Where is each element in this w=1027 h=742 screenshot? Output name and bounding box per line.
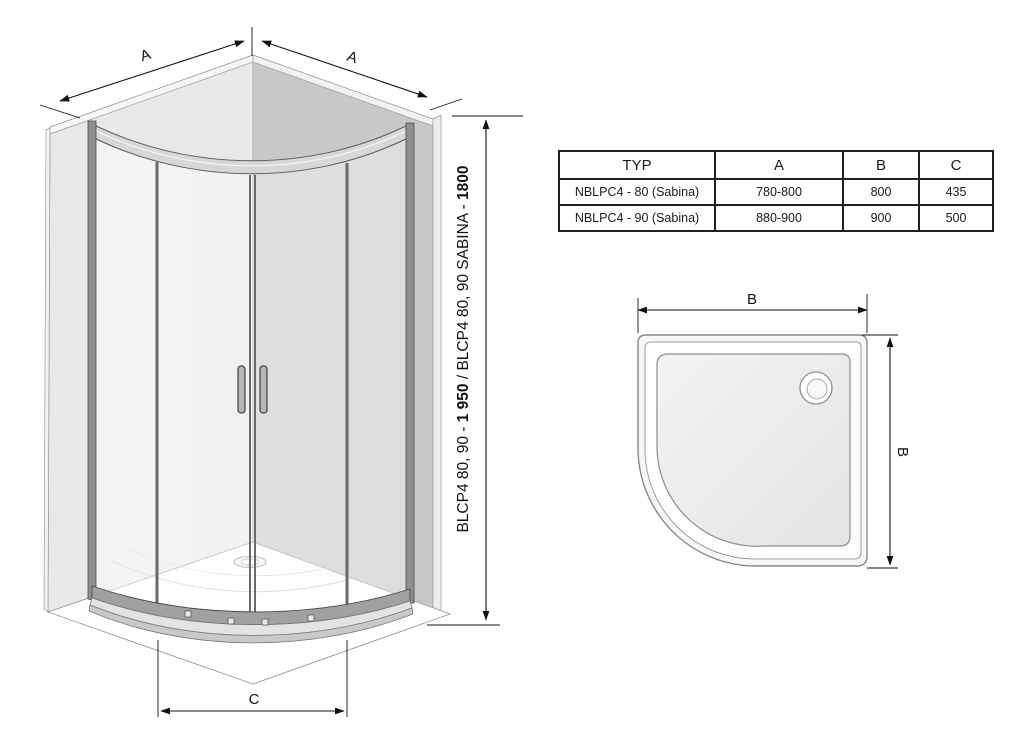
spec-header-b: B bbox=[843, 151, 919, 179]
spec-cell-a-1: 780-800 bbox=[715, 179, 843, 205]
top-view-svg: B B bbox=[600, 278, 935, 608]
dim-height-label-part2: 1 950 bbox=[455, 383, 472, 422]
dim-b-depth-label: B bbox=[894, 447, 911, 457]
spec-table-row-1: NBLPC4 - 80 (Sabina) 780-800 800 435 bbox=[559, 179, 993, 205]
spec-cell-c-1: 435 bbox=[919, 179, 993, 205]
spec-table-header-row: TYP A B C bbox=[559, 151, 993, 179]
spec-header-typ: TYP bbox=[559, 151, 715, 179]
dim-a-left-label: A bbox=[138, 46, 153, 65]
dim-a-left-ext-tick bbox=[40, 105, 80, 118]
spec-cell-b-2: 900 bbox=[843, 205, 919, 231]
spec-table-row-2: NBLPC4 - 90 (Sabina) 880-900 900 500 bbox=[559, 205, 993, 231]
spec-cell-a-2: 880-900 bbox=[715, 205, 843, 231]
wall-post-left bbox=[88, 121, 96, 601]
dim-height-label: BLCP4 80, 90 - 1 950 / BLCP4 80, 90 SABI… bbox=[455, 165, 472, 532]
spec-cell-c-2: 500 bbox=[919, 205, 993, 231]
dim-height-label-part4: 1800 bbox=[455, 165, 472, 199]
spec-header-c: C bbox=[919, 151, 993, 179]
dim-c-label: C bbox=[249, 691, 260, 708]
spec-cell-b-1: 800 bbox=[843, 179, 919, 205]
door-handle-right bbox=[260, 366, 267, 413]
right-wall-side-edge bbox=[433, 115, 441, 612]
dim-height-label-part1: BLCP4 80, 90 - bbox=[455, 422, 472, 532]
wall-post-right bbox=[406, 123, 414, 603]
spec-header-a: A bbox=[715, 151, 843, 179]
dim-a-right-ext-tick bbox=[430, 99, 462, 110]
spec-cell-typ-1: NBLPC4 - 80 (Sabina) bbox=[559, 179, 715, 205]
door-handle-left bbox=[238, 366, 245, 413]
drain-top-view-inner bbox=[807, 379, 827, 399]
dim-a-right-label: A bbox=[345, 48, 360, 67]
spec-cell-typ-2: NBLPC4 - 90 (Sabina) bbox=[559, 205, 715, 231]
spec-table: TYP A B C NBLPC4 - 80 (Sabina) 780-800 8… bbox=[558, 150, 994, 232]
dim-height bbox=[427, 116, 523, 625]
dim-height-label-part3: / BLCP4 80, 90 SABINA - bbox=[455, 200, 472, 384]
technical-drawing-page: A A BLCP4 80, 90 - 1 950 / BLCP4 80, 90 … bbox=[0, 0, 1027, 742]
dim-b-width-label: B bbox=[747, 291, 757, 308]
isometric-view-svg: A A BLCP4 80, 90 - 1 950 / BLCP4 80, 90 … bbox=[0, 0, 545, 742]
